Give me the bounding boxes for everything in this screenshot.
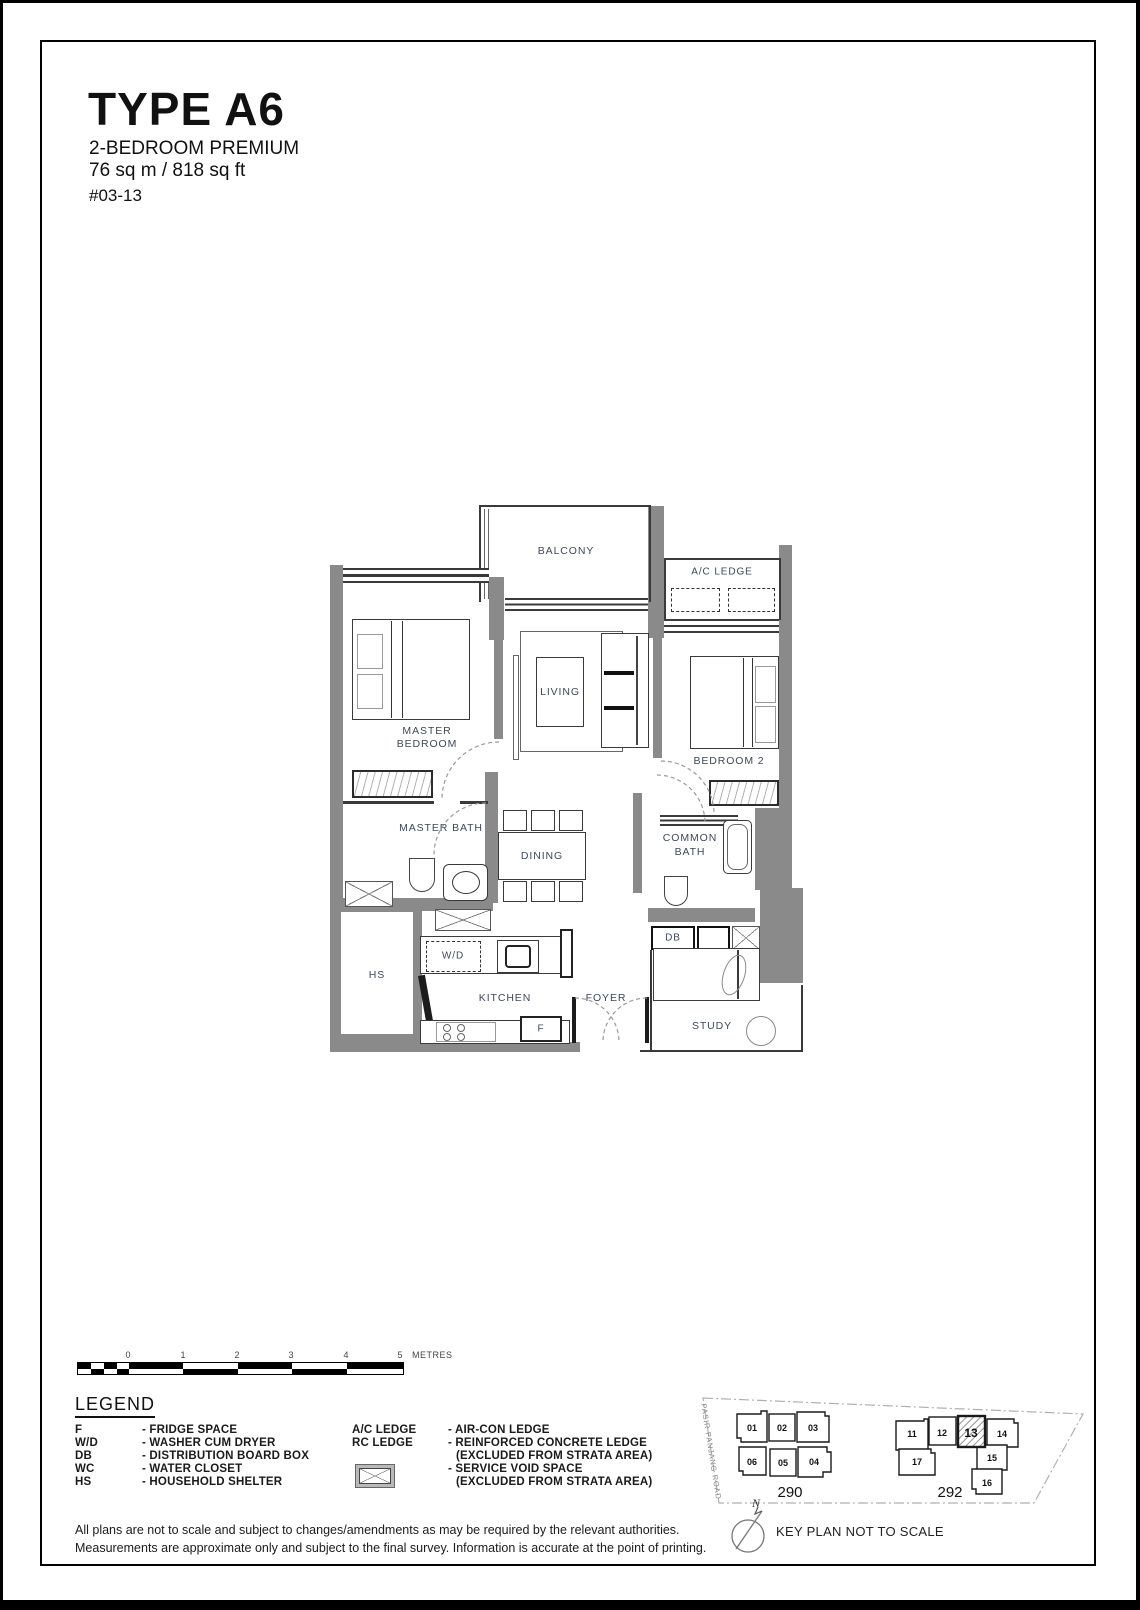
legend-abbr: F xyxy=(75,1424,142,1436)
disclaimer-line-2: Measurements are approximate only and su… xyxy=(75,1541,706,1555)
legend-row: - SERVICE VOID SPACE xyxy=(448,1463,583,1475)
entrance-door-leaf xyxy=(645,997,649,1043)
wall-line xyxy=(650,950,652,1050)
wall-line xyxy=(640,1050,803,1052)
kitchen-sink-bowl xyxy=(505,945,531,968)
wall-line xyxy=(801,985,803,1052)
room-label-foyer: FOYER xyxy=(586,992,627,1004)
sofa-cushion-line xyxy=(604,671,634,675)
room-label-balcony: BALCONY xyxy=(538,545,594,557)
room-label-hs: HS xyxy=(369,969,385,981)
wall xyxy=(633,793,642,893)
room-label-master-bedroom-1: MASTER xyxy=(402,725,451,737)
service-void-box xyxy=(435,909,491,931)
balcony-railing xyxy=(484,509,489,599)
wall-line xyxy=(343,801,434,804)
legend-desc2: (EXCLUDED FROM STRATA AREA) xyxy=(456,1476,652,1488)
legend-abbr: RC LEDGE xyxy=(352,1437,448,1449)
key-plan-caption: KEY PLAN NOT TO SCALE xyxy=(776,1524,944,1539)
dining-chair xyxy=(559,810,583,831)
hob-burner xyxy=(457,1024,465,1032)
dining-chair xyxy=(503,881,527,902)
common-bath-toilet xyxy=(664,876,688,906)
sofa-cushion-line xyxy=(604,706,634,710)
wall-line xyxy=(460,801,488,804)
label-db: DB xyxy=(665,933,681,944)
page-title: TYPE A6 xyxy=(88,82,285,136)
room-label-common-bath-2: BATH xyxy=(675,846,706,858)
entrance-door-leaf xyxy=(572,997,576,1043)
sofa xyxy=(601,633,649,748)
master-bed-headboard xyxy=(391,621,403,718)
dining-chair xyxy=(503,810,527,831)
label-wd: W/D xyxy=(442,951,464,962)
scale-tick: 2 xyxy=(234,1350,239,1360)
room-label-dining: DINING xyxy=(521,850,563,862)
room-label-common-bath-1: COMMON xyxy=(663,832,717,844)
unit-number: #03-13 xyxy=(89,186,142,206)
wall xyxy=(755,808,792,890)
legend-abbr: WC xyxy=(75,1463,142,1475)
legend-desc: - WASHER CUM DRYER xyxy=(142,1437,276,1449)
legend-desc: - AIR-CON LEDGE xyxy=(448,1424,550,1436)
scale-tick: 3 xyxy=(288,1350,293,1360)
page-inner-border xyxy=(40,40,1096,1566)
legend-row: DB- DISTRIBUTION BOARD BOX xyxy=(75,1450,309,1462)
scale-tick: 1 xyxy=(180,1350,185,1360)
legend-abbr: DB xyxy=(75,1450,142,1462)
disclaimer-line-1: All plans are not to scale and subject t… xyxy=(75,1523,680,1537)
db-box-2 xyxy=(697,926,730,950)
room-label-ac-ledge: A/C LEDGE xyxy=(691,567,752,578)
legend-abbr: HS xyxy=(75,1476,142,1488)
sofa-back-line xyxy=(636,636,638,745)
room-label-bedroom2: BEDROOM 2 xyxy=(693,755,764,767)
master-wardrobe xyxy=(352,770,433,798)
hob-burner xyxy=(443,1024,451,1032)
scale-tick: 5 xyxy=(397,1350,402,1360)
legend-desc: - SERVICE VOID SPACE xyxy=(448,1463,583,1475)
pillow xyxy=(755,706,776,743)
ac-unit-box xyxy=(671,588,720,612)
wall xyxy=(760,888,803,983)
legend-desc2: (EXCLUDED FROM STRATA AREA) xyxy=(456,1450,652,1462)
legend-row: WC- WATER CLOSET xyxy=(75,1463,242,1475)
scale-bar-graphic xyxy=(77,1362,404,1375)
kitchen-tall-unit xyxy=(560,929,573,978)
unit-type-subtitle: 2-BEDROOM PREMIUM xyxy=(89,138,299,160)
legend-desc: - FRIDGE SPACE xyxy=(142,1424,237,1436)
service-void-legend-symbol xyxy=(355,1464,395,1488)
service-void-box xyxy=(345,881,393,907)
legend-row: RC LEDGE- REINFORCED CONCRETE LEDGE xyxy=(352,1437,647,1449)
legend-desc: - REINFORCED CONCRETE LEDGE xyxy=(448,1437,647,1449)
label-fridge: F xyxy=(537,1024,544,1035)
room-label-living: LIVING xyxy=(540,686,580,698)
hob-burner xyxy=(457,1033,465,1041)
common-bath-tub-inner xyxy=(727,824,748,870)
room-label-master-bedroom-2: BEDROOM xyxy=(397,738,458,750)
legend-row: HS- HOUSEHOLD SHELTER xyxy=(75,1476,282,1488)
legend-row: A/C LEDGE- AIR-CON LEDGE xyxy=(352,1424,550,1436)
pillow xyxy=(357,674,383,709)
dining-chair xyxy=(531,810,555,831)
legend-desc: - HOUSEHOLD SHELTER xyxy=(142,1476,282,1488)
hob-burner xyxy=(443,1033,451,1041)
legend-row: F- FRIDGE SPACE xyxy=(75,1424,237,1436)
legend-abbr: A/C LEDGE xyxy=(352,1424,448,1436)
scale-tick: 4 xyxy=(343,1350,348,1360)
window xyxy=(343,568,489,583)
dining-chair xyxy=(531,881,555,902)
legend-row: W/D- WASHER CUM DRYER xyxy=(75,1437,276,1449)
study-lamp xyxy=(746,1016,776,1046)
room-label-kitchen: KITCHEN xyxy=(479,992,531,1004)
master-bath-toilet xyxy=(409,858,435,892)
scale-unit-label: METRES xyxy=(412,1350,453,1360)
room-label-study: STUDY xyxy=(692,1020,732,1032)
bedroom2-headboard xyxy=(743,658,753,747)
ac-unit-box xyxy=(728,588,775,612)
legend-desc: - DISTRIBUTION BOARD BOX xyxy=(142,1450,309,1462)
window xyxy=(664,619,779,633)
wall xyxy=(648,908,755,922)
room-label-master-bath: MASTER BATH xyxy=(399,822,483,834)
legend-desc: - WATER CLOSET xyxy=(142,1463,242,1475)
wall xyxy=(494,640,503,739)
dining-chair xyxy=(559,881,583,902)
unit-area: 76 sq m / 818 sq ft xyxy=(89,160,245,182)
bedroom2-wardrobe xyxy=(709,780,779,806)
service-void-box xyxy=(732,926,760,950)
tv-console xyxy=(513,655,519,760)
pillow xyxy=(755,666,776,703)
legend-abbr: W/D xyxy=(75,1437,142,1449)
legend-title: LEGEND xyxy=(75,1394,155,1418)
wall xyxy=(653,638,662,758)
pillow xyxy=(357,634,383,669)
window xyxy=(505,598,648,611)
scale-tick: 0 xyxy=(125,1350,130,1360)
master-bath-basin xyxy=(452,871,480,894)
